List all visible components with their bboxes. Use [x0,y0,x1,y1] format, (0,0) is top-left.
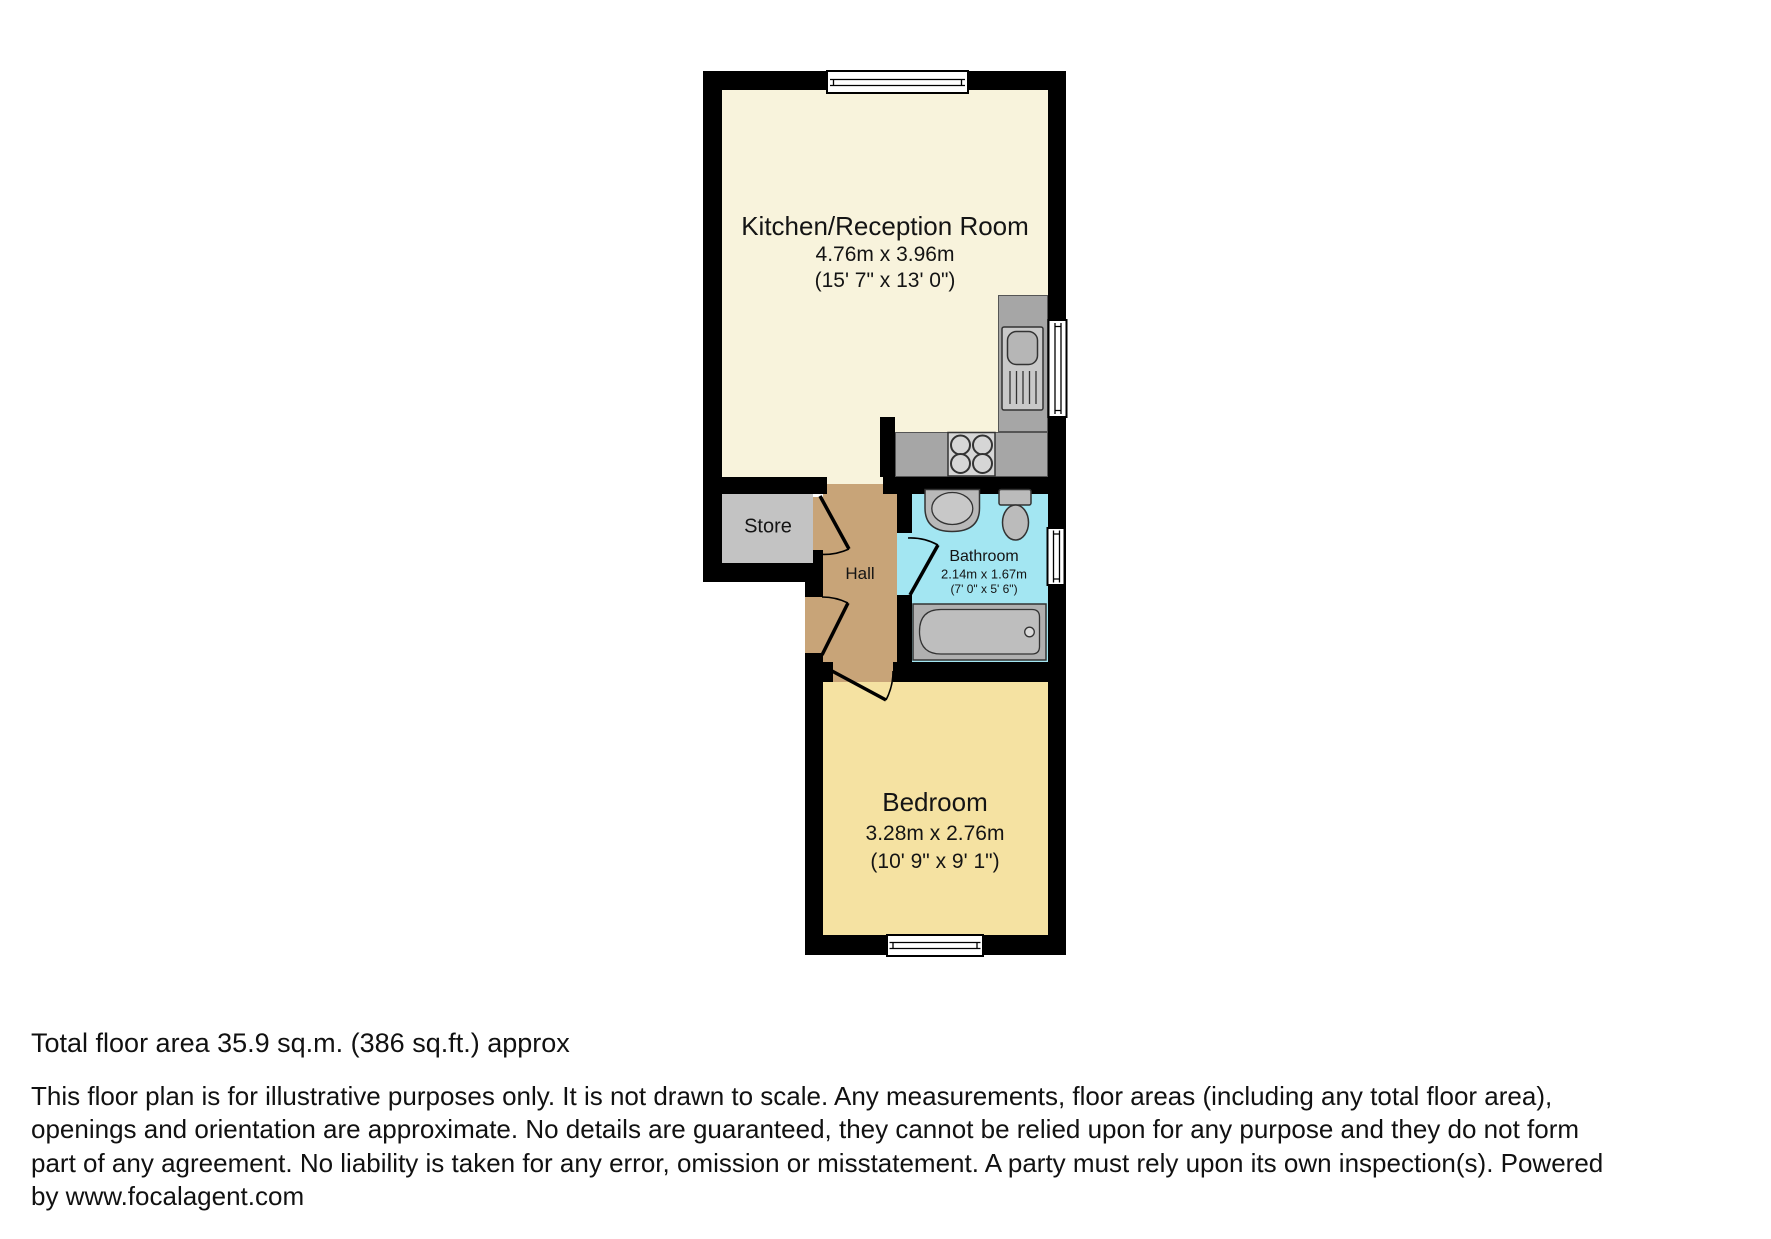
floorplan-page: Kitchen/Reception Room 4.76m x 3.96m (15… [0,0,1771,1239]
store-room-name: Store [744,516,792,539]
bedroom-door-icon [832,671,893,700]
total-floor-area-text: Total floor area 35.9 sq.m. (386 sq.ft.)… [31,1028,570,1059]
disclaimer-line-2: openings and orientation are approximate… [31,1113,1603,1146]
entry-door-icon [822,597,848,655]
window-kitchen-right [1049,320,1067,417]
bedroom-dims-metric: 3.28m x 2.76m [866,822,1005,846]
disclaimer-line-3: part of any agreement. No liability is t… [31,1147,1603,1180]
disclaimer-line-4: by www.focalagent.com [31,1180,1603,1213]
window-bathroom-right [1048,528,1065,585]
bathroom-door-icon [908,538,938,595]
kitchen-dims-imperial: (15' 7" x 13' 0") [815,269,956,293]
bathroom-dims-imperial: (7' 0" x 5' 6") [950,583,1017,597]
toilet-icon [999,490,1031,541]
store-door-icon [817,496,849,554]
bathroom-dims-metric: 2.14m x 1.67m [941,568,1027,583]
basin-icon [925,490,980,532]
kitchen-sink-icon [1002,327,1043,410]
bedroom-room-name: Bedroom [882,788,988,818]
bedroom-dims-imperial: (10' 9" x 9' 1") [870,850,999,874]
kitchen-dims-metric: 4.76m x 3.96m [816,243,955,267]
kitchen-room-name: Kitchen/Reception Room [741,212,1029,242]
window-bedroom-bottom [887,935,983,956]
disclaimer-text: This floor plan is for illustrative purp… [31,1080,1603,1214]
hall-room-name: Hall [845,564,874,584]
hob-icon [948,433,995,477]
bathroom-room-name: Bathroom [949,548,1018,566]
bathtub-icon [913,604,1046,660]
disclaimer-line-1: This floor plan is for illustrative purp… [31,1080,1603,1113]
window-top [827,71,968,93]
